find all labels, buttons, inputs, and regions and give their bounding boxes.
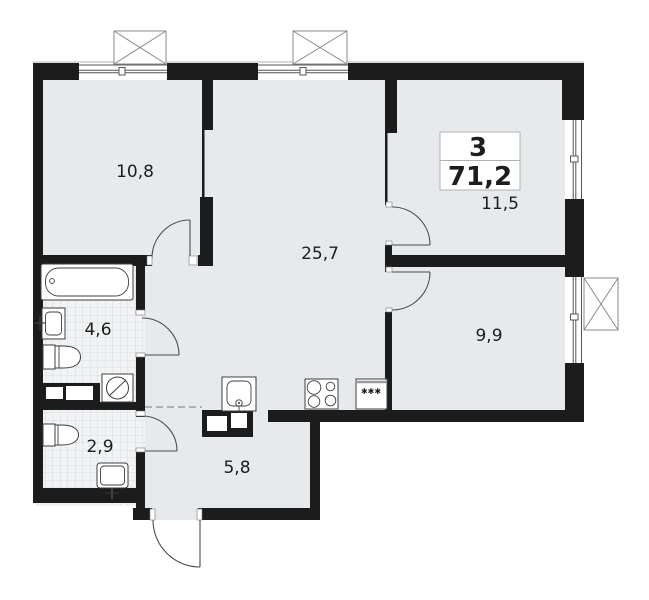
wall-segment	[136, 357, 145, 417]
room-area-label: 5,8	[223, 458, 250, 478]
room-area-label: 4,6	[84, 320, 111, 340]
wall-segment	[348, 63, 565, 80]
wall-segment	[200, 197, 213, 266]
fridge-marks: ✱✱✱	[361, 387, 381, 396]
room-area-label: 2,9	[86, 437, 113, 457]
ac-box-icon	[584, 278, 618, 330]
vent-box-icon	[293, 31, 347, 64]
wall-segment	[198, 508, 320, 520]
wall-segment	[565, 197, 584, 277]
window-icon	[565, 277, 584, 363]
washing-machine-icon	[102, 374, 133, 402]
rooms-count-value: 3	[469, 133, 487, 163]
wall-segment	[385, 255, 565, 267]
wall-segment	[310, 418, 320, 520]
room-area-label: 10,8	[116, 162, 154, 182]
wall-segment	[562, 63, 584, 120]
toilet-small-icon	[43, 424, 79, 446]
wall-segment	[385, 80, 397, 133]
bathtub-icon	[41, 264, 133, 300]
stove-icon	[305, 379, 338, 409]
wall-segment	[33, 488, 140, 503]
room-area-label: 9,9	[475, 326, 502, 346]
hall-cabinet-box	[207, 416, 227, 431]
room-area-label: 11,5	[481, 194, 519, 214]
shaft-box	[46, 387, 63, 399]
wall-segment	[136, 452, 145, 520]
hall-cabinet-box	[231, 413, 247, 428]
living-floor	[202, 63, 398, 422]
window-icon	[258, 63, 348, 80]
toilet-icon	[43, 345, 81, 369]
window-icon	[79, 63, 167, 80]
kitchen-sink-icon	[222, 377, 256, 413]
floor-plan-canvas: ✱✱✱ 3 71,2 10,8 25,7 11,5 9,9 4,6 2,9 5,…	[0, 0, 649, 600]
window-icon	[565, 120, 584, 199]
vent-box-icon	[114, 31, 166, 64]
entrance-door	[153, 520, 200, 567]
total-area-value: 71,2	[448, 162, 512, 192]
wall-segment	[202, 63, 213, 130]
fridge-icon: ✱✱✱	[356, 379, 387, 409]
floor-plan: ✱✱✱ 3 71,2 10,8 25,7 11,5 9,9 4,6 2,9 5,…	[0, 0, 649, 600]
wall-segment	[43, 402, 136, 410]
apartment-info-box: 3 71,2	[440, 132, 520, 192]
corridor-floor	[136, 250, 213, 422]
shaft-box	[66, 386, 93, 400]
partition-wall	[385, 133, 388, 205]
room-area-label: 25,7	[301, 244, 339, 264]
partition-wall	[202, 130, 205, 200]
